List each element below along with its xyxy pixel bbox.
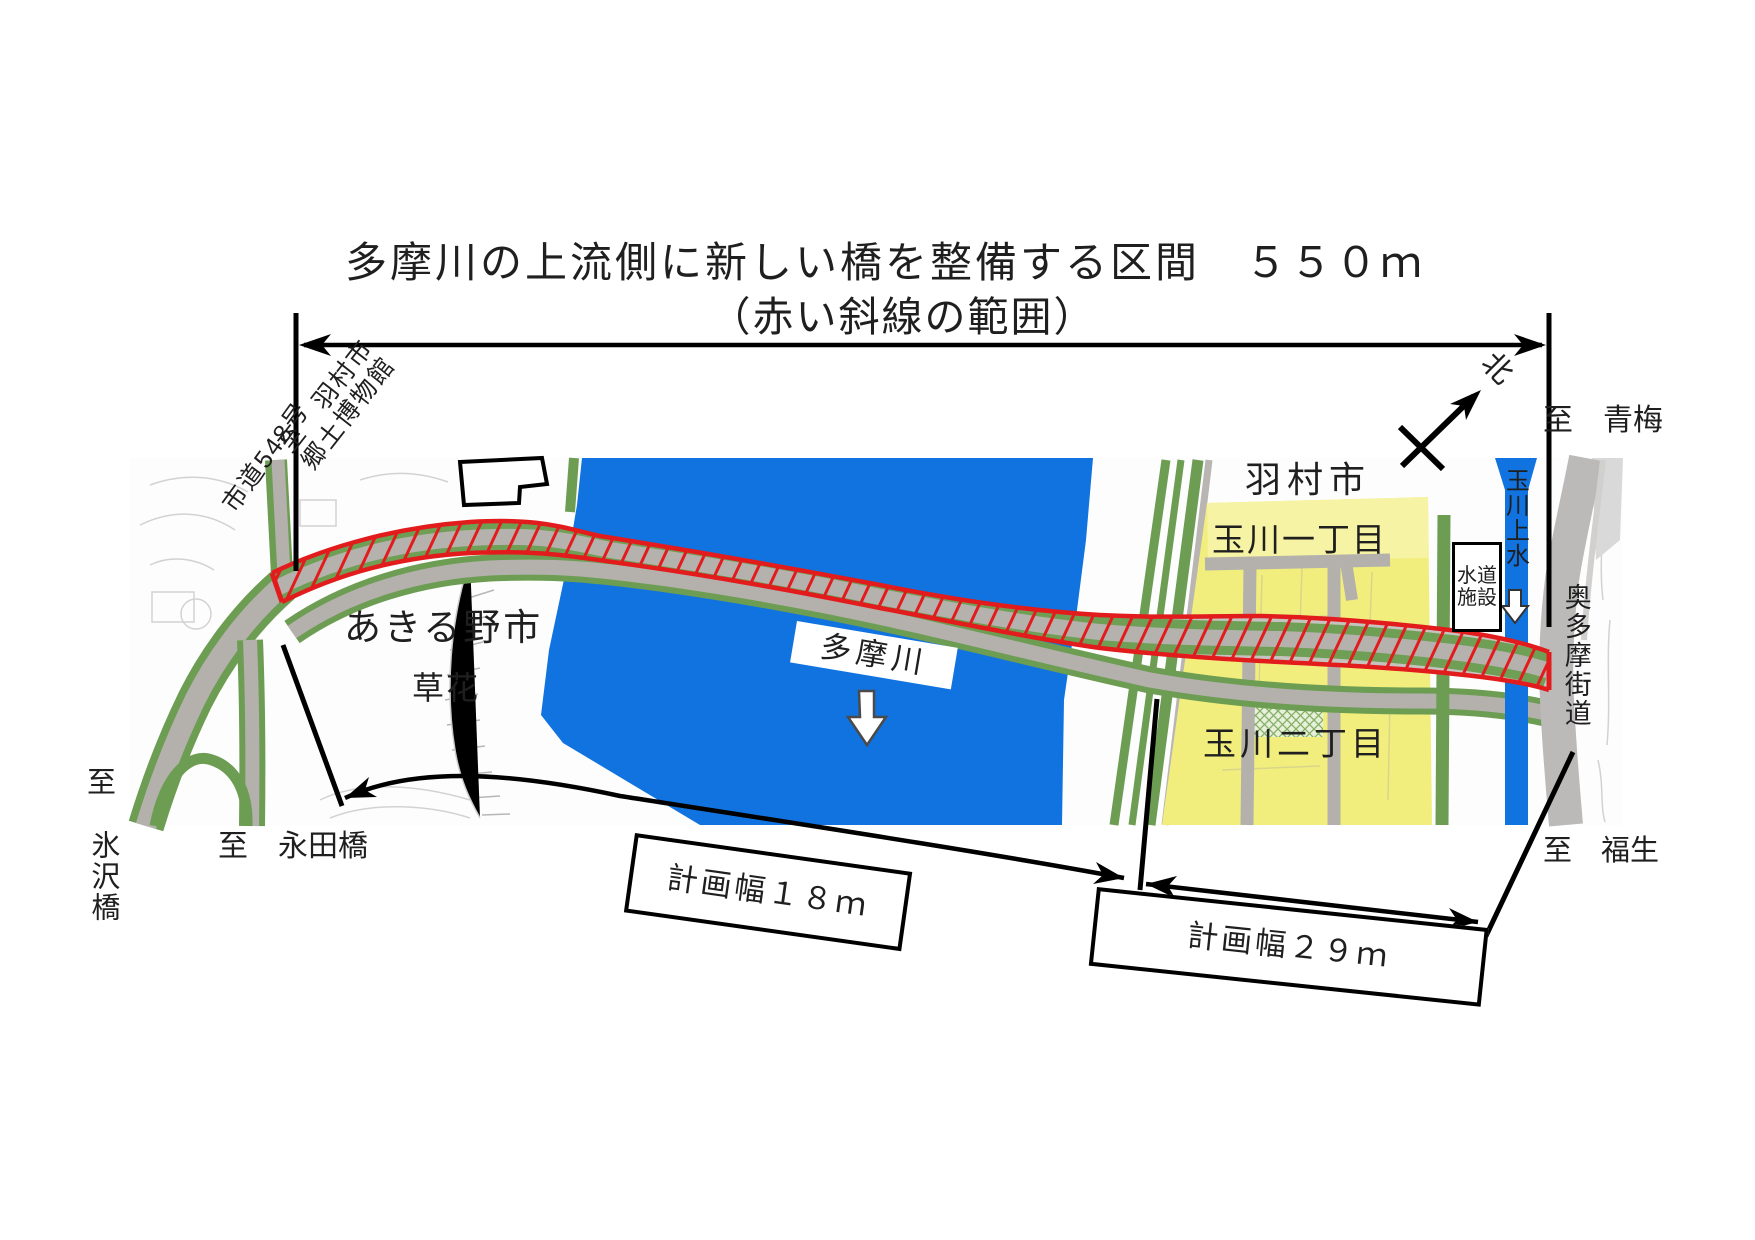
north-arrow-icon bbox=[1400, 390, 1481, 469]
tamagawa-2chome-label: 玉川二丁目 bbox=[1203, 726, 1388, 762]
plan-width-29m-label: 計画幅２９ｍ bbox=[1186, 919, 1392, 974]
to-nagata-bridge-label: 至 永田橋 bbox=[218, 830, 368, 863]
water-facility-box: 水道 施設 bbox=[1452, 542, 1502, 632]
to-hisawa-prefix-label: 至 bbox=[87, 768, 116, 800]
kusabana-label: 草花 bbox=[412, 671, 480, 706]
hamura-city-label: 羽村市 bbox=[1245, 460, 1371, 500]
page: 多摩川の上流側に新しい橋を整備する区間 ５５０ｍ （赤い斜線の範囲） 市道548… bbox=[0, 0, 1755, 1240]
okutama-kaido-label: 奥多摩街道 bbox=[1560, 583, 1590, 738]
water-facility-line2: 施設 bbox=[1457, 587, 1497, 609]
tamagawa-1chome-label: 玉川一丁目 bbox=[1212, 522, 1387, 558]
to-ome-label: 至 青梅 bbox=[1543, 404, 1663, 437]
plan-width-18m-label: 計画幅１８ｍ bbox=[665, 861, 872, 923]
water-facility-line1: 水道 bbox=[1457, 565, 1497, 587]
page-title-line2: （赤い斜線の範囲） bbox=[228, 295, 1578, 340]
to-hisawa-bridge-label: 氷沢橋 bbox=[86, 830, 118, 940]
page-title-line1: 多摩川の上流側に新しい橋を整備する区間 ５５０ｍ bbox=[200, 240, 1570, 286]
to-fussa-label: 至 福生 bbox=[1543, 836, 1659, 868]
tamagawa-josui-label: 玉川上水 bbox=[1501, 468, 1527, 583]
akiruno-city-label: あきる野市 bbox=[344, 608, 543, 649]
